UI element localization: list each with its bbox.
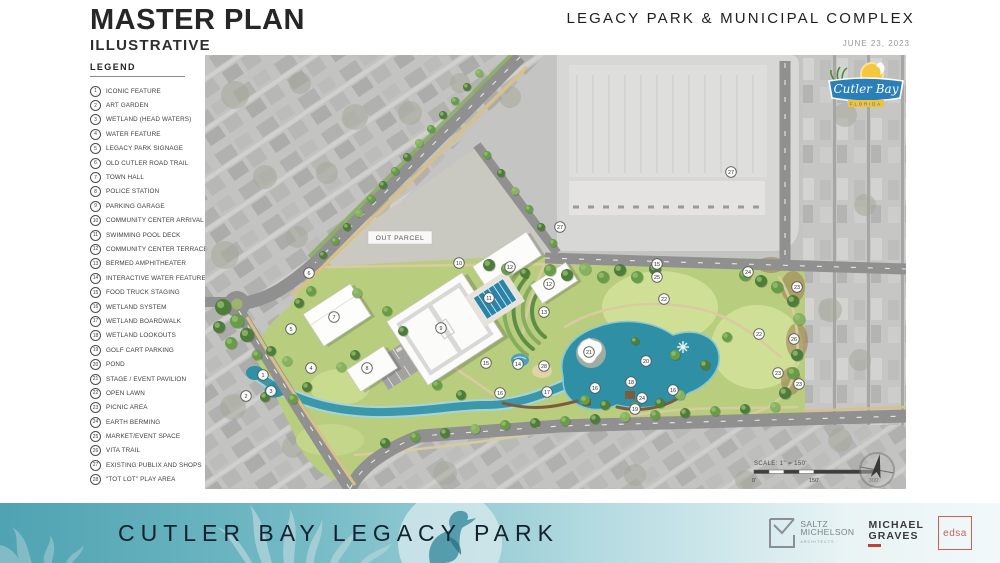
legend-item-label: POLICE STATION	[106, 188, 159, 195]
map-marker-2: 2	[241, 391, 252, 402]
svg-text:24: 24	[639, 396, 645, 402]
legend-item-number: 10	[90, 215, 101, 226]
map-marker-10: 10	[454, 258, 465, 269]
map-marker-23: 23	[773, 368, 784, 379]
map-marker-1: 1	[258, 370, 269, 381]
svg-text:7: 7	[333, 315, 336, 321]
header-left: MASTER PLAN ILLUSTRATIVE	[90, 4, 305, 54]
project-date: JUNE 23, 2023	[843, 39, 910, 48]
svg-text:16: 16	[670, 388, 676, 394]
svg-text:17: 17	[544, 390, 550, 396]
svg-text:1: 1	[262, 373, 265, 379]
legend-item-number: 17	[90, 316, 101, 327]
legend-item-label: EXISTING PUBLIX AND SHOPS	[106, 462, 202, 469]
legend-item-label: WETLAND LOOKOUTS	[106, 332, 176, 339]
legend-item: 14INTERACTIVE WATER FEATURE	[90, 271, 208, 285]
legend-item-label: MARKET/EVENT SPACE	[106, 433, 180, 440]
legend-item: 8POLICE STATION	[90, 185, 208, 199]
legend-item-number: 13	[90, 258, 101, 269]
map-marker-12: 12	[544, 279, 555, 290]
legend-item: 1ICONIC FEATURE	[90, 84, 208, 98]
map-marker-19: 19	[630, 404, 641, 415]
legend-item-number: 15	[90, 287, 101, 298]
legend-item-number: 19	[90, 345, 101, 356]
map-marker-22: 22	[659, 294, 670, 305]
svg-text:OUT PARCEL: OUT PARCEL	[376, 235, 425, 242]
legend-item-label: ART GARDEN	[106, 102, 149, 109]
legend-item: 10COMMUNITY CENTER ARRIVAL	[90, 214, 208, 228]
map-marker-22: 22	[754, 329, 765, 340]
svg-text:22: 22	[756, 332, 762, 338]
legend-item-number: 12	[90, 244, 101, 255]
legend-item: 9PARKING GARAGE	[90, 199, 208, 213]
legend-item: 19GOLF CART PARKING	[90, 343, 208, 357]
map-marker-12: 12	[505, 262, 516, 273]
legend-item: 11SWIMMING POOL DECK	[90, 228, 208, 242]
legend-item-number: 2	[90, 100, 101, 111]
legend-item: 12COMMUNITY CENTER TERRACE	[90, 242, 208, 256]
legend-item-label: PICNIC AREA	[106, 404, 148, 411]
legend-item-label: POND	[106, 361, 125, 368]
map-marker-25: 25	[652, 272, 663, 283]
legend-item: 7TOWN HALL	[90, 170, 208, 184]
legend-item-label: EARTH BERMING	[106, 419, 160, 426]
map-marker-14: 14	[513, 359, 524, 370]
legend-item: 23PICNIC AREA	[90, 401, 208, 415]
logo-state-name: FLORIDA	[850, 102, 882, 107]
legend-item-label: WATER FEATURE	[106, 131, 161, 138]
legend-item-number: 1	[90, 86, 101, 97]
legend-item-label: GOLF CART PARKING	[106, 347, 174, 354]
legend-item-label: PARKING GARAGE	[106, 203, 165, 210]
svg-text:15: 15	[654, 262, 660, 268]
edsa-logo: edsa	[938, 516, 972, 550]
out-parcel-label: OUT PARCEL	[368, 231, 432, 244]
map-marker-23: 23	[794, 379, 805, 390]
svg-text:10: 10	[456, 261, 462, 267]
legend-item-label: TOWN HALL	[106, 174, 144, 181]
legend-item: 6OLD CUTLER ROAD TRAIL	[90, 156, 208, 170]
svg-text:6: 6	[308, 271, 311, 277]
legend-item-label: "TOT LOT" PLAY AREA	[106, 476, 176, 483]
legend-item-number: 27	[90, 460, 101, 471]
banner-title: CUTLER BAY LEGACY PARK	[118, 503, 559, 563]
svg-text:5: 5	[290, 327, 293, 333]
svg-text:3: 3	[270, 389, 273, 395]
legend-item-label: COMMUNITY CENTER ARRIVAL	[106, 217, 204, 224]
legend-item-label: WETLAND SYSTEM	[106, 304, 167, 311]
master-plan-page: { "header": { "title": "MASTER PLAN", "s…	[0, 0, 1000, 563]
map-marker-16: 16	[495, 388, 506, 399]
legend-item: 3WETLAND (HEAD WATERS)	[90, 113, 208, 127]
svg-text:28: 28	[541, 364, 547, 370]
map-marker-4: 4	[306, 363, 317, 374]
svg-text:12: 12	[546, 282, 552, 288]
legend-item-label: OPEN LAWN	[106, 390, 145, 397]
legend-item-number: 16	[90, 302, 101, 313]
banner-logos: SALTZ MICHELSON ARCHITECTS MICHAEL GRAVE…	[768, 503, 972, 563]
map-marker-26: 26	[789, 334, 800, 345]
map-marker-17: 17	[542, 387, 553, 398]
legend-item-number: 21	[90, 374, 101, 385]
map-marker-24: 24	[743, 267, 754, 278]
map-marker-27: 27	[555, 222, 566, 233]
saltz-line3: ARCHITECTS	[800, 538, 854, 547]
legend-item-number: 24	[90, 417, 101, 428]
svg-text:26: 26	[791, 337, 797, 343]
wave-roots-icon	[0, 527, 84, 563]
map-marker-3: 3	[266, 386, 277, 397]
legend-item-label: WETLAND (HEAD WATERS)	[106, 116, 191, 123]
page-title: MASTER PLAN	[90, 4, 305, 36]
svg-text:21: 21	[586, 350, 592, 356]
map-marker-16: 16	[590, 383, 601, 394]
map-marker-11: 11	[484, 293, 495, 304]
legend-item-label: WETLAND BOARDWALK	[106, 318, 181, 325]
publix-parcel	[557, 55, 799, 251]
header-right: LEGACY PARK & MUNICIPAL COMPLEX	[566, 10, 915, 27]
legend-item-number: 28	[90, 474, 101, 485]
logo-town-name: Cutler Bay	[834, 82, 899, 96]
svg-text:20: 20	[643, 359, 649, 365]
legend-item-label: OLD CUTLER ROAD TRAIL	[106, 160, 188, 167]
legend-item: 21STAGE / EVENT PAVILION	[90, 372, 208, 386]
map-marker-27: 27	[726, 167, 737, 178]
svg-text:16: 16	[497, 391, 503, 397]
svg-text:SCALE: 1" = 150': SCALE: 1" = 150'	[754, 461, 807, 467]
legend-item-number: 9	[90, 201, 101, 212]
map-marker-23: 23	[792, 282, 803, 293]
footer-banner: CUTLER BAY LEGACY PARK SALTZ MICHELSON A…	[0, 503, 1000, 563]
legend-item: 20POND	[90, 357, 208, 371]
map-marker-18: 18	[626, 377, 637, 388]
map-marker-24: 24	[637, 393, 648, 404]
legend-item: 22OPEN LAWN	[90, 386, 208, 400]
legend-item-number: 25	[90, 431, 101, 442]
legend-item: 24EARTH BERMING	[90, 415, 208, 429]
svg-text:8: 8	[366, 366, 369, 372]
legend-item-number: 14	[90, 273, 101, 284]
svg-text:16: 16	[592, 386, 598, 392]
legend-item-number: 7	[90, 172, 101, 183]
legend-item-number: 11	[90, 230, 101, 241]
legend-item-label: INTERACTIVE WATER FEATURE	[106, 275, 206, 282]
legend-item: 18WETLAND LOOKOUTS	[90, 329, 208, 343]
map-marker-28: 28	[539, 361, 550, 372]
cutler-bay-town-logo: Cutler Bay FLORIDA	[826, 60, 906, 110]
map-marker-15: 15	[652, 259, 663, 270]
map-marker-13: 13	[539, 307, 550, 318]
graves-line2: GRAVES	[868, 531, 924, 542]
master-plan-map: OUT PARCEL SCALE: 1" = 150' 0'150'300' 6…	[205, 55, 906, 489]
map-marker-6: 6	[304, 268, 315, 279]
legend-item-number: 5	[90, 143, 101, 154]
legend-item: 26VITA TRAIL	[90, 444, 208, 458]
legend-item-label: ICONIC FEATURE	[106, 88, 161, 95]
map-illustration: OUT PARCEL SCALE: 1" = 150' 0'150'300' 6…	[205, 55, 906, 489]
svg-text:9: 9	[440, 326, 443, 332]
legend-item: 13BERMED AMPHITHEATER	[90, 257, 208, 271]
legend-item: 17WETLAND BOARDWALK	[90, 314, 208, 328]
legend-item: 28"TOT LOT" PLAY AREA	[90, 473, 208, 487]
page-subtitle: ILLUSTRATIVE	[90, 37, 305, 54]
legend-item-number: 4	[90, 129, 101, 140]
svg-text:14: 14	[515, 362, 521, 368]
legend-item: 15FOOD TRUCK STAGING	[90, 285, 208, 299]
map-marker-15: 15	[481, 358, 492, 369]
map-marker-7: 7	[329, 312, 340, 323]
legend-item-number: 3	[90, 114, 101, 125]
legend-item-label: STAGE / EVENT PAVILION	[106, 376, 186, 383]
legend-item-number: 6	[90, 158, 101, 169]
sm-monogram-icon	[768, 517, 796, 549]
svg-text:4: 4	[310, 366, 313, 372]
legend-item-label: FOOD TRUCK STAGING	[106, 289, 180, 296]
legend-item: 2ART GARDEN	[90, 98, 208, 112]
legend-item: 25MARKET/EVENT SPACE	[90, 429, 208, 443]
graves-line1: MICHAEL	[868, 520, 924, 531]
svg-text:11: 11	[486, 296, 492, 302]
svg-text:25: 25	[654, 275, 660, 281]
svg-text:27: 27	[728, 170, 734, 176]
legend-item-label: COMMUNITY CENTER TERRACE	[106, 246, 208, 253]
legend-item-label: BERMED AMPHITHEATER	[106, 260, 186, 267]
svg-text:22: 22	[661, 297, 667, 303]
svg-text:19: 19	[632, 407, 638, 413]
saltz-michelson-logo: SALTZ MICHELSON ARCHITECTS	[768, 517, 854, 549]
legend-item: 4WATER FEATURE	[90, 127, 208, 141]
svg-text:0': 0'	[752, 478, 756, 484]
map-marker-16: 16	[668, 385, 679, 396]
project-title: LEGACY PARK & MUNICIPAL COMPLEX	[566, 10, 915, 27]
svg-text:23: 23	[775, 371, 781, 377]
legend-list: 1ICONIC FEATURE2ART GARDEN3WETLAND (HEAD…	[90, 84, 208, 487]
michael-graves-logo: MICHAEL GRAVES	[868, 520, 924, 547]
svg-text:24: 24	[745, 270, 751, 276]
legend-item-number: 8	[90, 186, 101, 197]
graves-red-bar	[868, 544, 881, 547]
legend-panel: LEGEND 1ICONIC FEATURE2ART GARDEN3WETLAN…	[90, 62, 208, 487]
legend-item-number: 26	[90, 445, 101, 456]
map-marker-5: 5	[286, 324, 297, 335]
map-marker-20: 20	[641, 356, 652, 367]
legend-item-label: VITA TRAIL	[106, 447, 140, 454]
svg-text:150': 150'	[809, 478, 819, 484]
map-marker-8: 8	[362, 363, 373, 374]
svg-text:23: 23	[794, 285, 800, 291]
legend-item: 27EXISTING PUBLIX AND SHOPS	[90, 458, 208, 472]
svg-text:23: 23	[796, 382, 802, 388]
legend-item: 16WETLAND SYSTEM	[90, 300, 208, 314]
svg-text:18: 18	[628, 380, 634, 386]
svg-text:13: 13	[541, 310, 547, 316]
saltz-line2: MICHELSON	[800, 528, 854, 537]
svg-text:27: 27	[557, 225, 563, 231]
legend-item-number: 18	[90, 330, 101, 341]
legend-item-number: 23	[90, 402, 101, 413]
legend-item-number: 20	[90, 359, 101, 370]
legend-item-label: SWIMMING POOL DECK	[106, 232, 181, 239]
map-marker-21: 21	[584, 347, 595, 358]
legend-item-number: 22	[90, 388, 101, 399]
svg-text:15: 15	[483, 361, 489, 367]
wetland-lookout	[625, 391, 635, 399]
svg-text:2: 2	[245, 394, 248, 400]
legend-item-label: LEGACY PARK SIGNAGE	[106, 145, 183, 152]
svg-text:12: 12	[507, 265, 513, 271]
map-marker-9: 9	[436, 323, 447, 334]
legend-title: LEGEND	[90, 62, 185, 77]
legend-item: 5LEGACY PARK SIGNAGE	[90, 142, 208, 156]
